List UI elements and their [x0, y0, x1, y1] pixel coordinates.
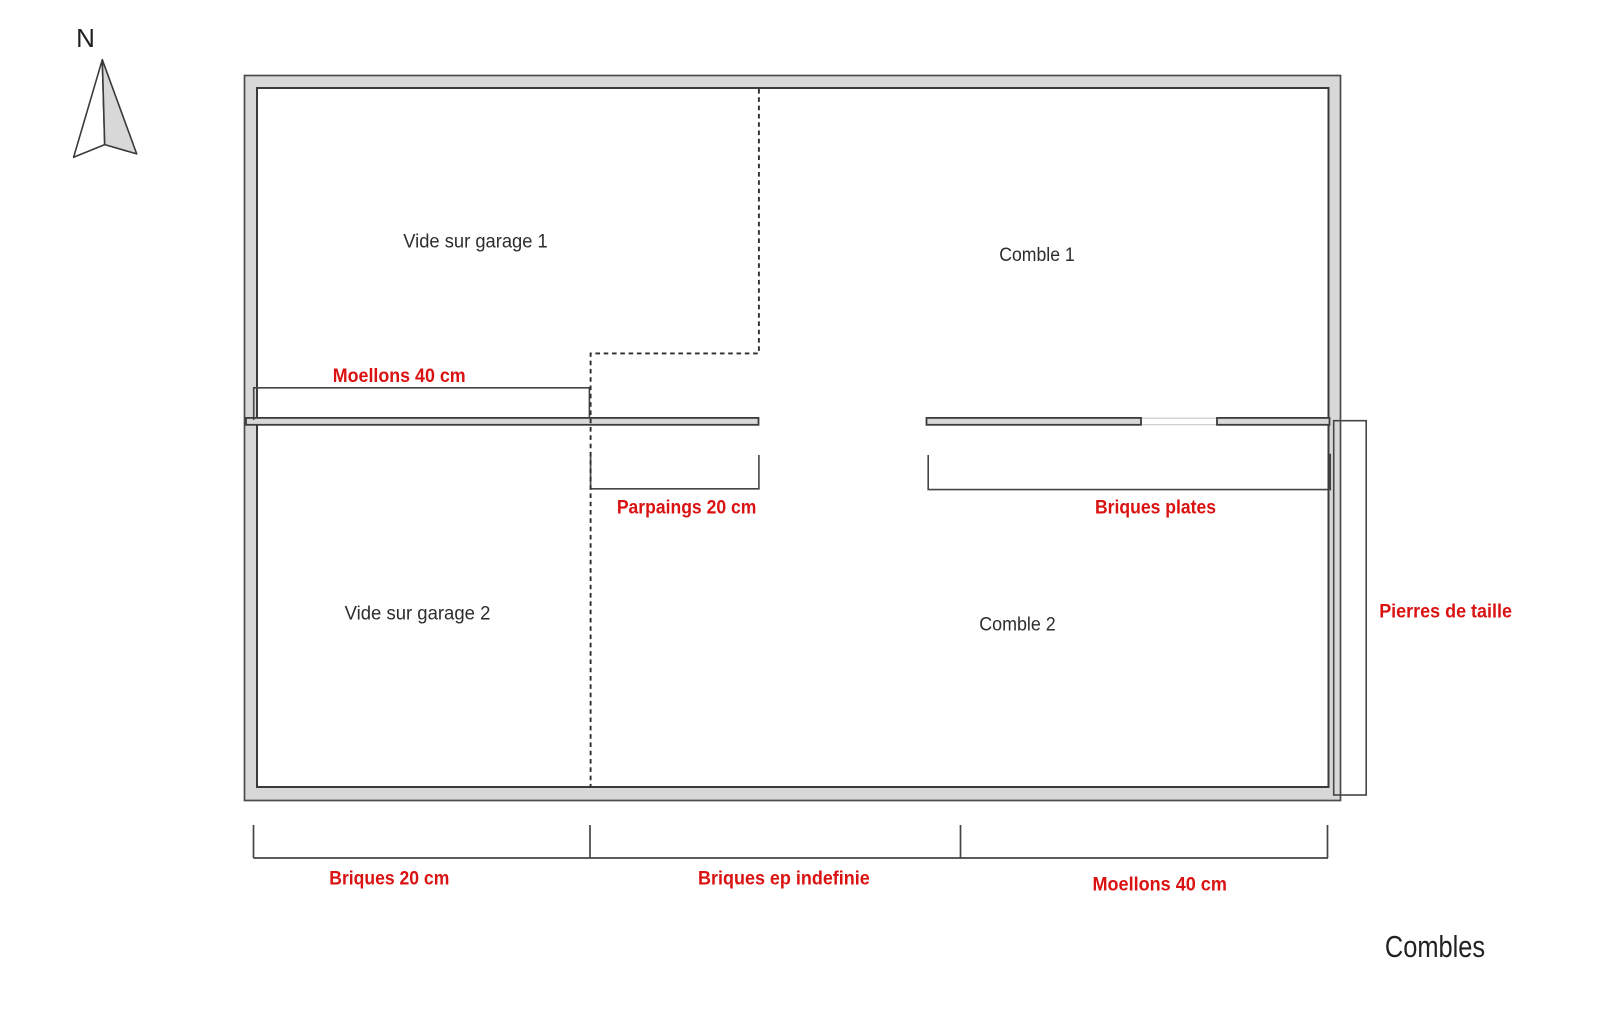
- svg-text:Moellons 40 cm: Moellons 40 cm: [1093, 874, 1227, 896]
- svg-text:Combles: Combles: [1385, 929, 1485, 964]
- svg-text:Briques 20 cm: Briques 20 cm: [329, 867, 449, 889]
- svg-text:Comble 2: Comble 2: [979, 615, 1056, 636]
- svg-text:Briques ep indefinie: Briques ep indefinie: [698, 867, 870, 889]
- svg-text:Parpaings 20 cm: Parpaings 20 cm: [617, 496, 757, 518]
- svg-text:Briques plates: Briques plates: [1095, 496, 1216, 518]
- svg-text:Pierres de taille: Pierres de taille: [1379, 601, 1512, 623]
- svg-text:Vide sur garage 2: Vide sur garage 2: [345, 604, 491, 625]
- svg-text:Moellons 40 cm: Moellons 40 cm: [333, 365, 466, 387]
- svg-text:N: N: [76, 23, 95, 53]
- svg-text:Vide sur garage 1: Vide sur garage 1: [403, 232, 548, 253]
- svg-text:Comble 1: Comble 1: [999, 245, 1075, 266]
